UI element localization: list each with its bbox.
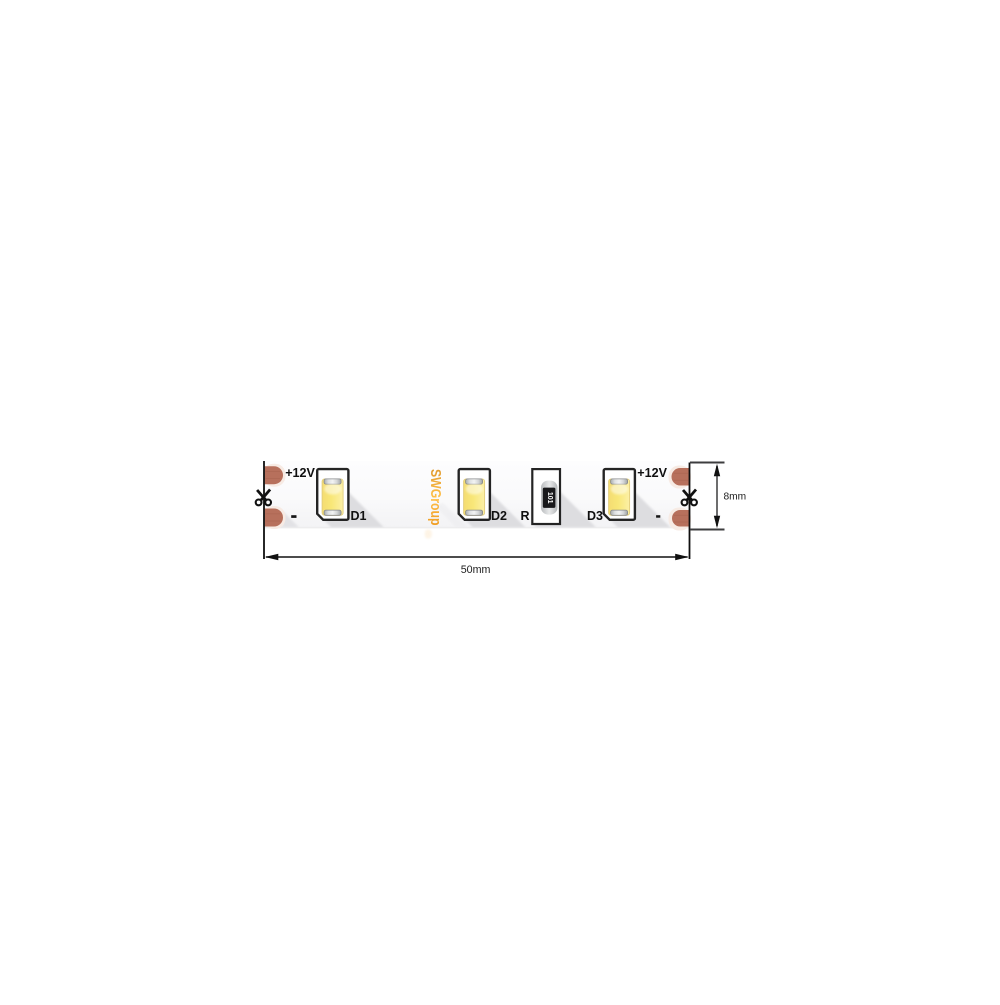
svg-text:D3: D3 (587, 509, 603, 523)
svg-text:D1: D1 (351, 509, 367, 523)
svg-text:SWGroup: SWGroup (427, 469, 444, 526)
svg-text:D2: D2 (491, 509, 507, 523)
svg-text:101: 101 (546, 492, 553, 504)
svg-text:+12V: +12V (637, 466, 667, 480)
svg-text:R: R (521, 509, 530, 523)
svg-text:8mm: 8mm (724, 492, 747, 503)
svg-text:50mm: 50mm (461, 564, 491, 576)
svg-text:+12V: +12V (285, 466, 315, 480)
